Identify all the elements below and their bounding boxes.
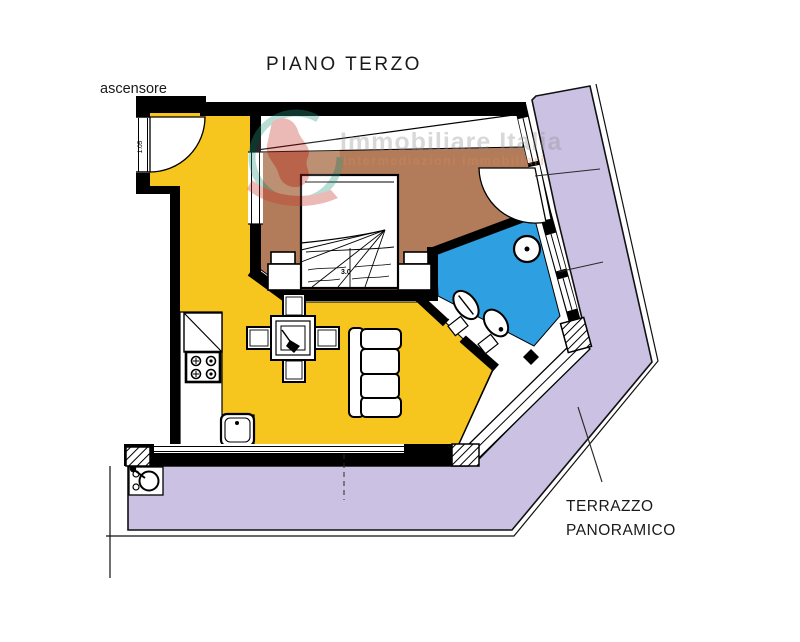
- watermark-tagline: intermediazioni immobiliari: [343, 154, 545, 168]
- elevator-label: ascensore: [100, 81, 167, 97]
- terrace-sink: [129, 466, 163, 495]
- agency-logo-icon: [247, 113, 340, 206]
- page-title: PIANO TERZO: [266, 54, 422, 75]
- wall-bottom: [124, 452, 478, 466]
- column-bottom-right: [452, 444, 479, 466]
- floor-plan-page: 3.0: [0, 0, 800, 642]
- wall-top: [200, 102, 526, 116]
- terrace-label-line1: TERRAZZO: [566, 498, 654, 515]
- nightstand-left: [271, 252, 295, 264]
- nightstand-right: [404, 252, 428, 264]
- floor-plan-drawing: 3.0: [0, 0, 800, 642]
- kitchen-sink: [221, 414, 254, 446]
- column-bottom-left: [126, 447, 150, 466]
- sofa: [349, 328, 401, 417]
- terrace-label-line2: PANORAMICO: [566, 522, 676, 539]
- kitchen-cabinet: [184, 313, 222, 352]
- wall-left: [170, 190, 180, 447]
- wall-bedroom-bottom: [286, 290, 432, 301]
- window-bottom: [154, 444, 404, 453]
- stove: [186, 352, 220, 382]
- bed-dimension: 3.0: [341, 269, 351, 276]
- entrance-door-dimension: 1.05: [137, 140, 144, 153]
- watermark-name: Immobiliare Italia: [340, 128, 562, 156]
- washbasin: [514, 236, 540, 262]
